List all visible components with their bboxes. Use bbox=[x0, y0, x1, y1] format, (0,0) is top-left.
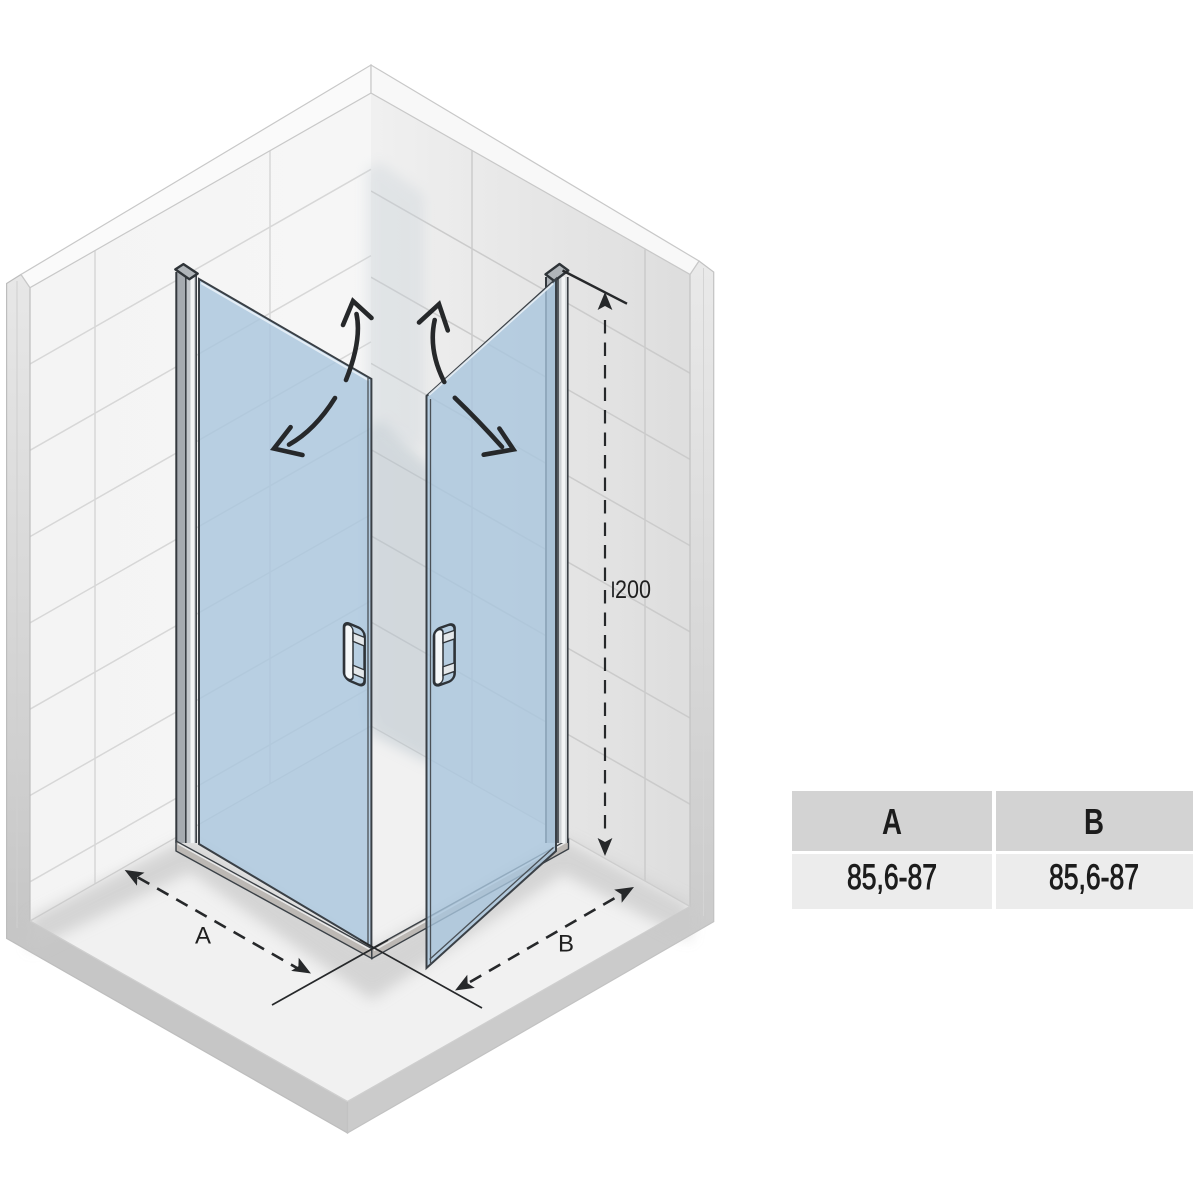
svg-text:85,6-87: 85,6-87 bbox=[1049, 858, 1139, 897]
svg-text:B: B bbox=[558, 931, 574, 958]
svg-text:B: B bbox=[1084, 801, 1104, 842]
svg-text:A: A bbox=[882, 801, 902, 842]
svg-text:200: 200 bbox=[615, 576, 651, 604]
svg-text:85,6-87: 85,6-87 bbox=[847, 858, 937, 897]
svg-text:A: A bbox=[195, 923, 211, 950]
